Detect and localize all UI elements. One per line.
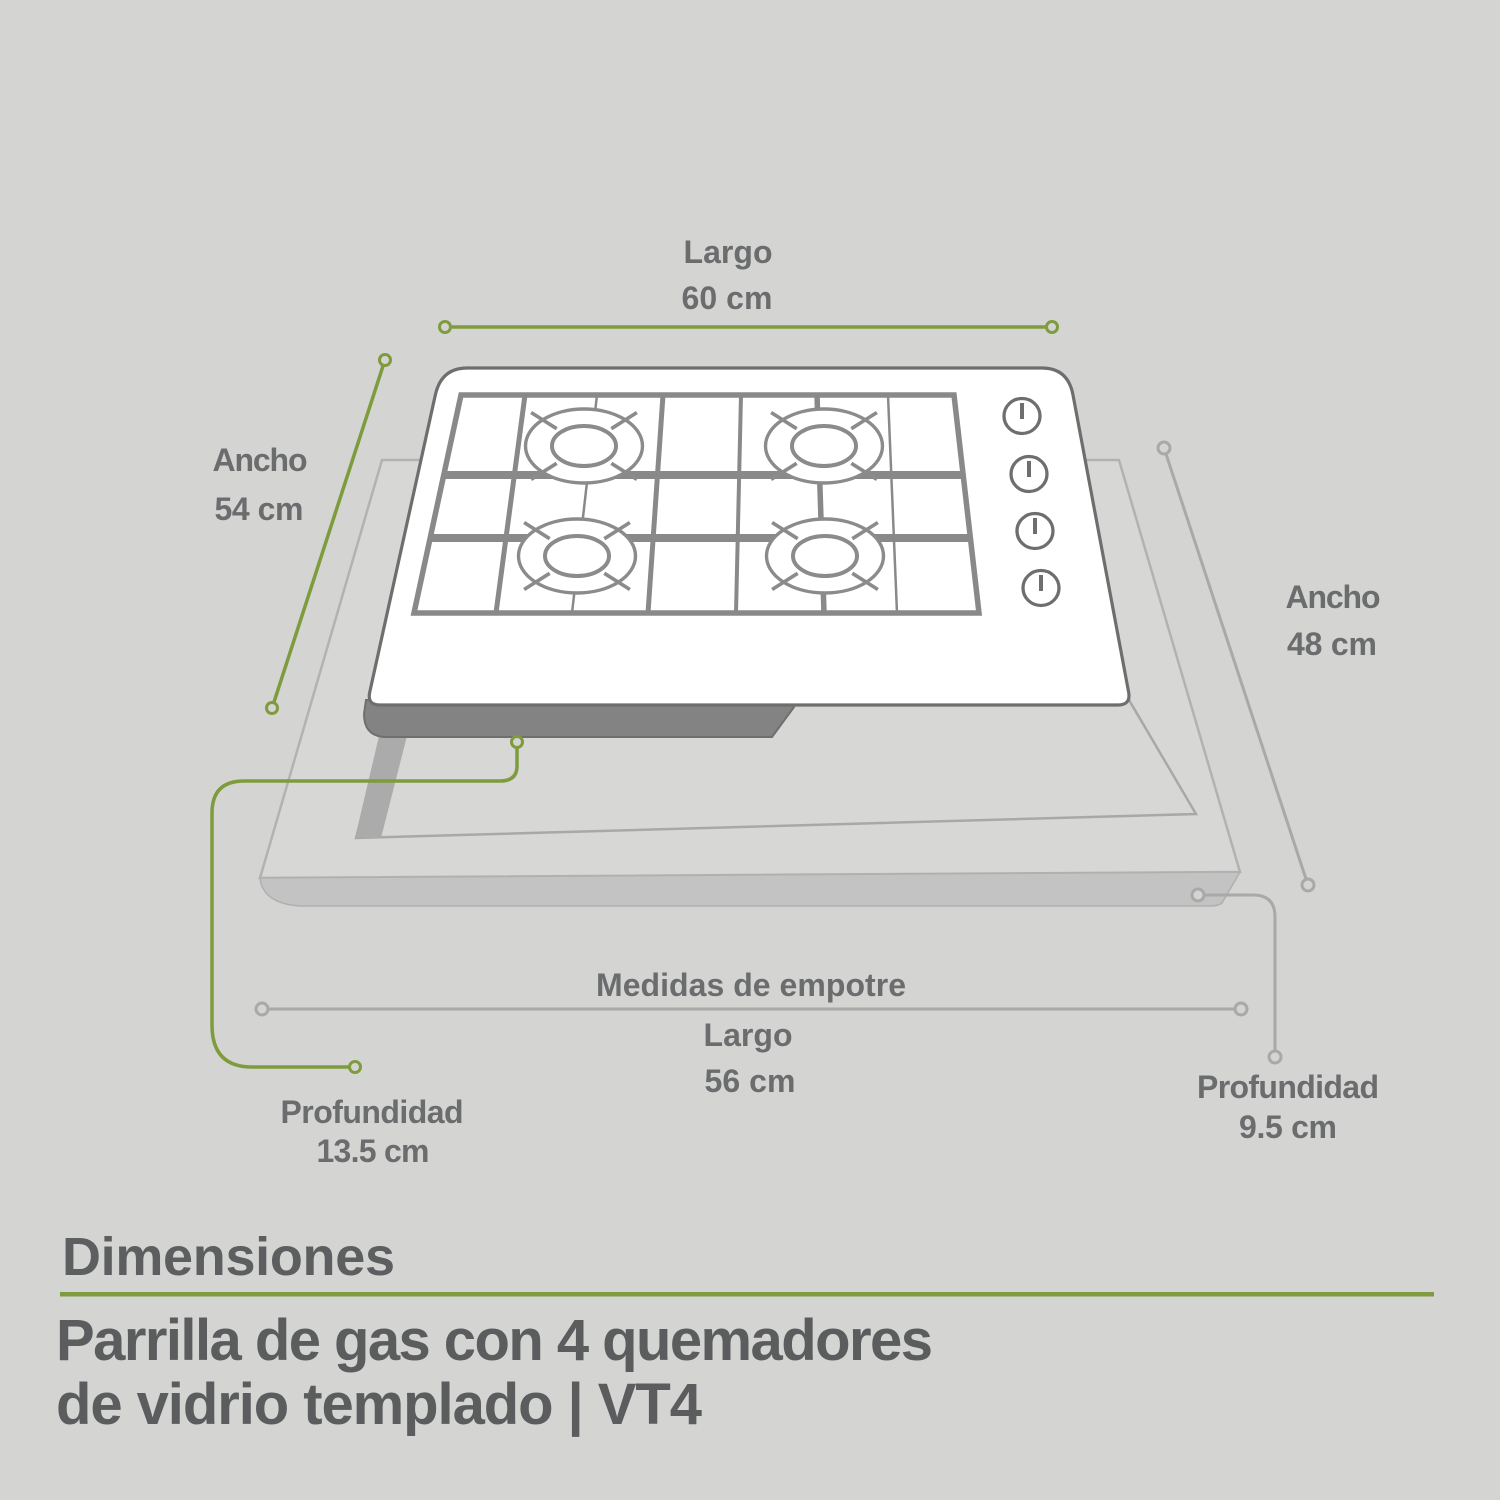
svg-text:Parrilla de gas con 4 quemador: Parrilla de gas con 4 quemadores	[56, 1308, 933, 1373]
svg-text:9.5 cm: 9.5 cm	[1239, 1109, 1337, 1145]
svg-text:Largo: Largo	[704, 1017, 793, 1053]
svg-text:de vidrio templado | VT4: de vidrio templado | VT4	[56, 1372, 702, 1437]
svg-text:56 cm: 56 cm	[705, 1063, 796, 1099]
svg-text:60 cm: 60 cm	[682, 280, 773, 316]
svg-text:Profundidad: Profundidad	[281, 1094, 464, 1130]
svg-text:48 cm: 48 cm	[1287, 626, 1377, 662]
svg-text:Ancho: Ancho	[1286, 579, 1381, 615]
svg-text:Profundidad: Profundidad	[1197, 1069, 1379, 1105]
svg-text:Dimensiones: Dimensiones	[62, 1227, 395, 1287]
svg-text:Largo: Largo	[684, 234, 773, 270]
svg-text:54 cm: 54 cm	[215, 491, 304, 527]
svg-text:13.5 cm: 13.5 cm	[317, 1133, 430, 1169]
svg-text:Ancho: Ancho	[213, 442, 308, 478]
svg-text:Medidas de empotre: Medidas de empotre	[596, 967, 906, 1003]
